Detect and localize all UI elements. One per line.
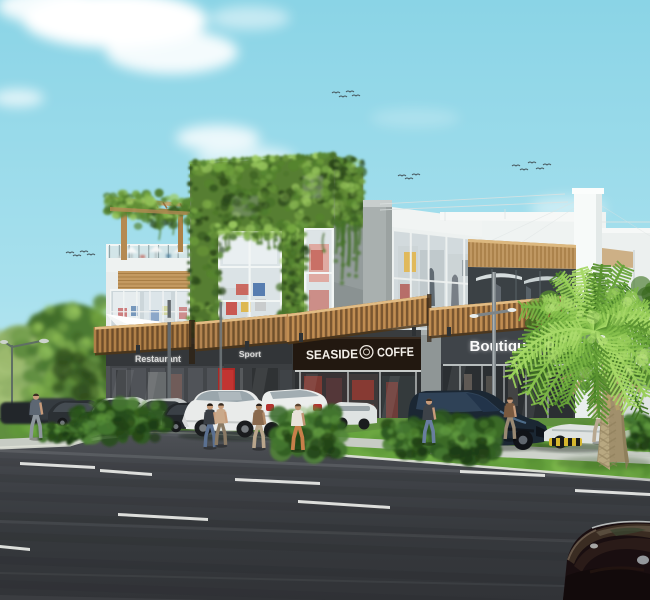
svg-text:SEASIDE: SEASIDE	[306, 347, 358, 362]
svg-text:Sport: Sport	[239, 349, 261, 359]
svg-text:COFFE: COFFE	[377, 345, 414, 360]
svg-text:Restaurant: Restaurant	[135, 354, 181, 364]
